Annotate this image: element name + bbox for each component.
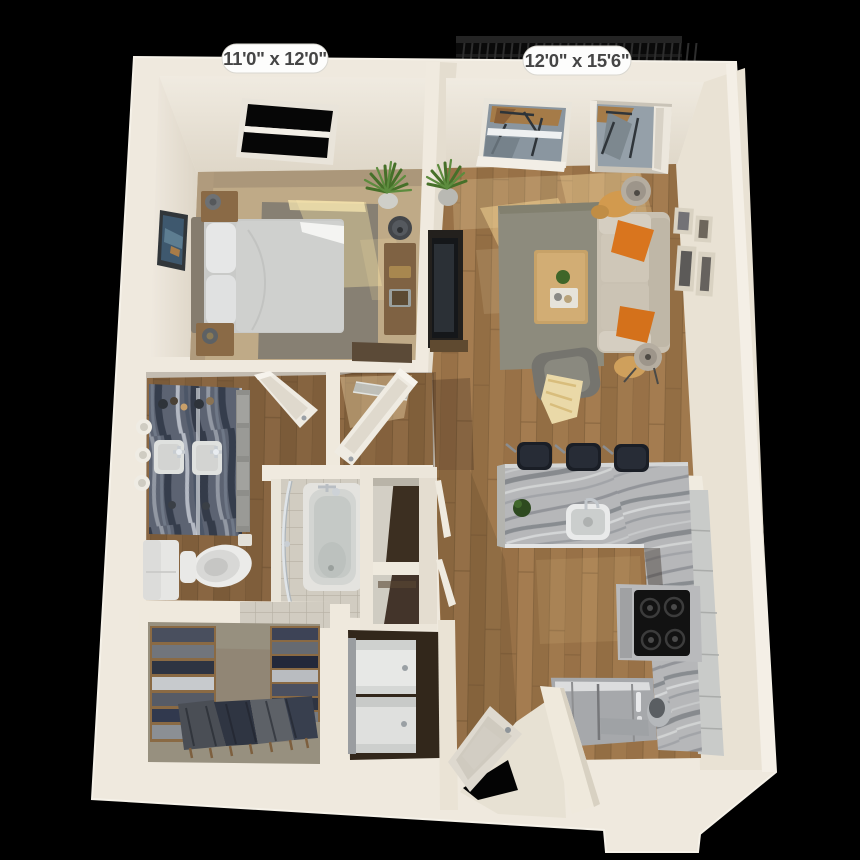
svg-text:12'0" x 15'6": 12'0" x 15'6"	[525, 50, 630, 71]
svg-text:11'0" x 12'0": 11'0" x 12'0"	[223, 48, 327, 69]
